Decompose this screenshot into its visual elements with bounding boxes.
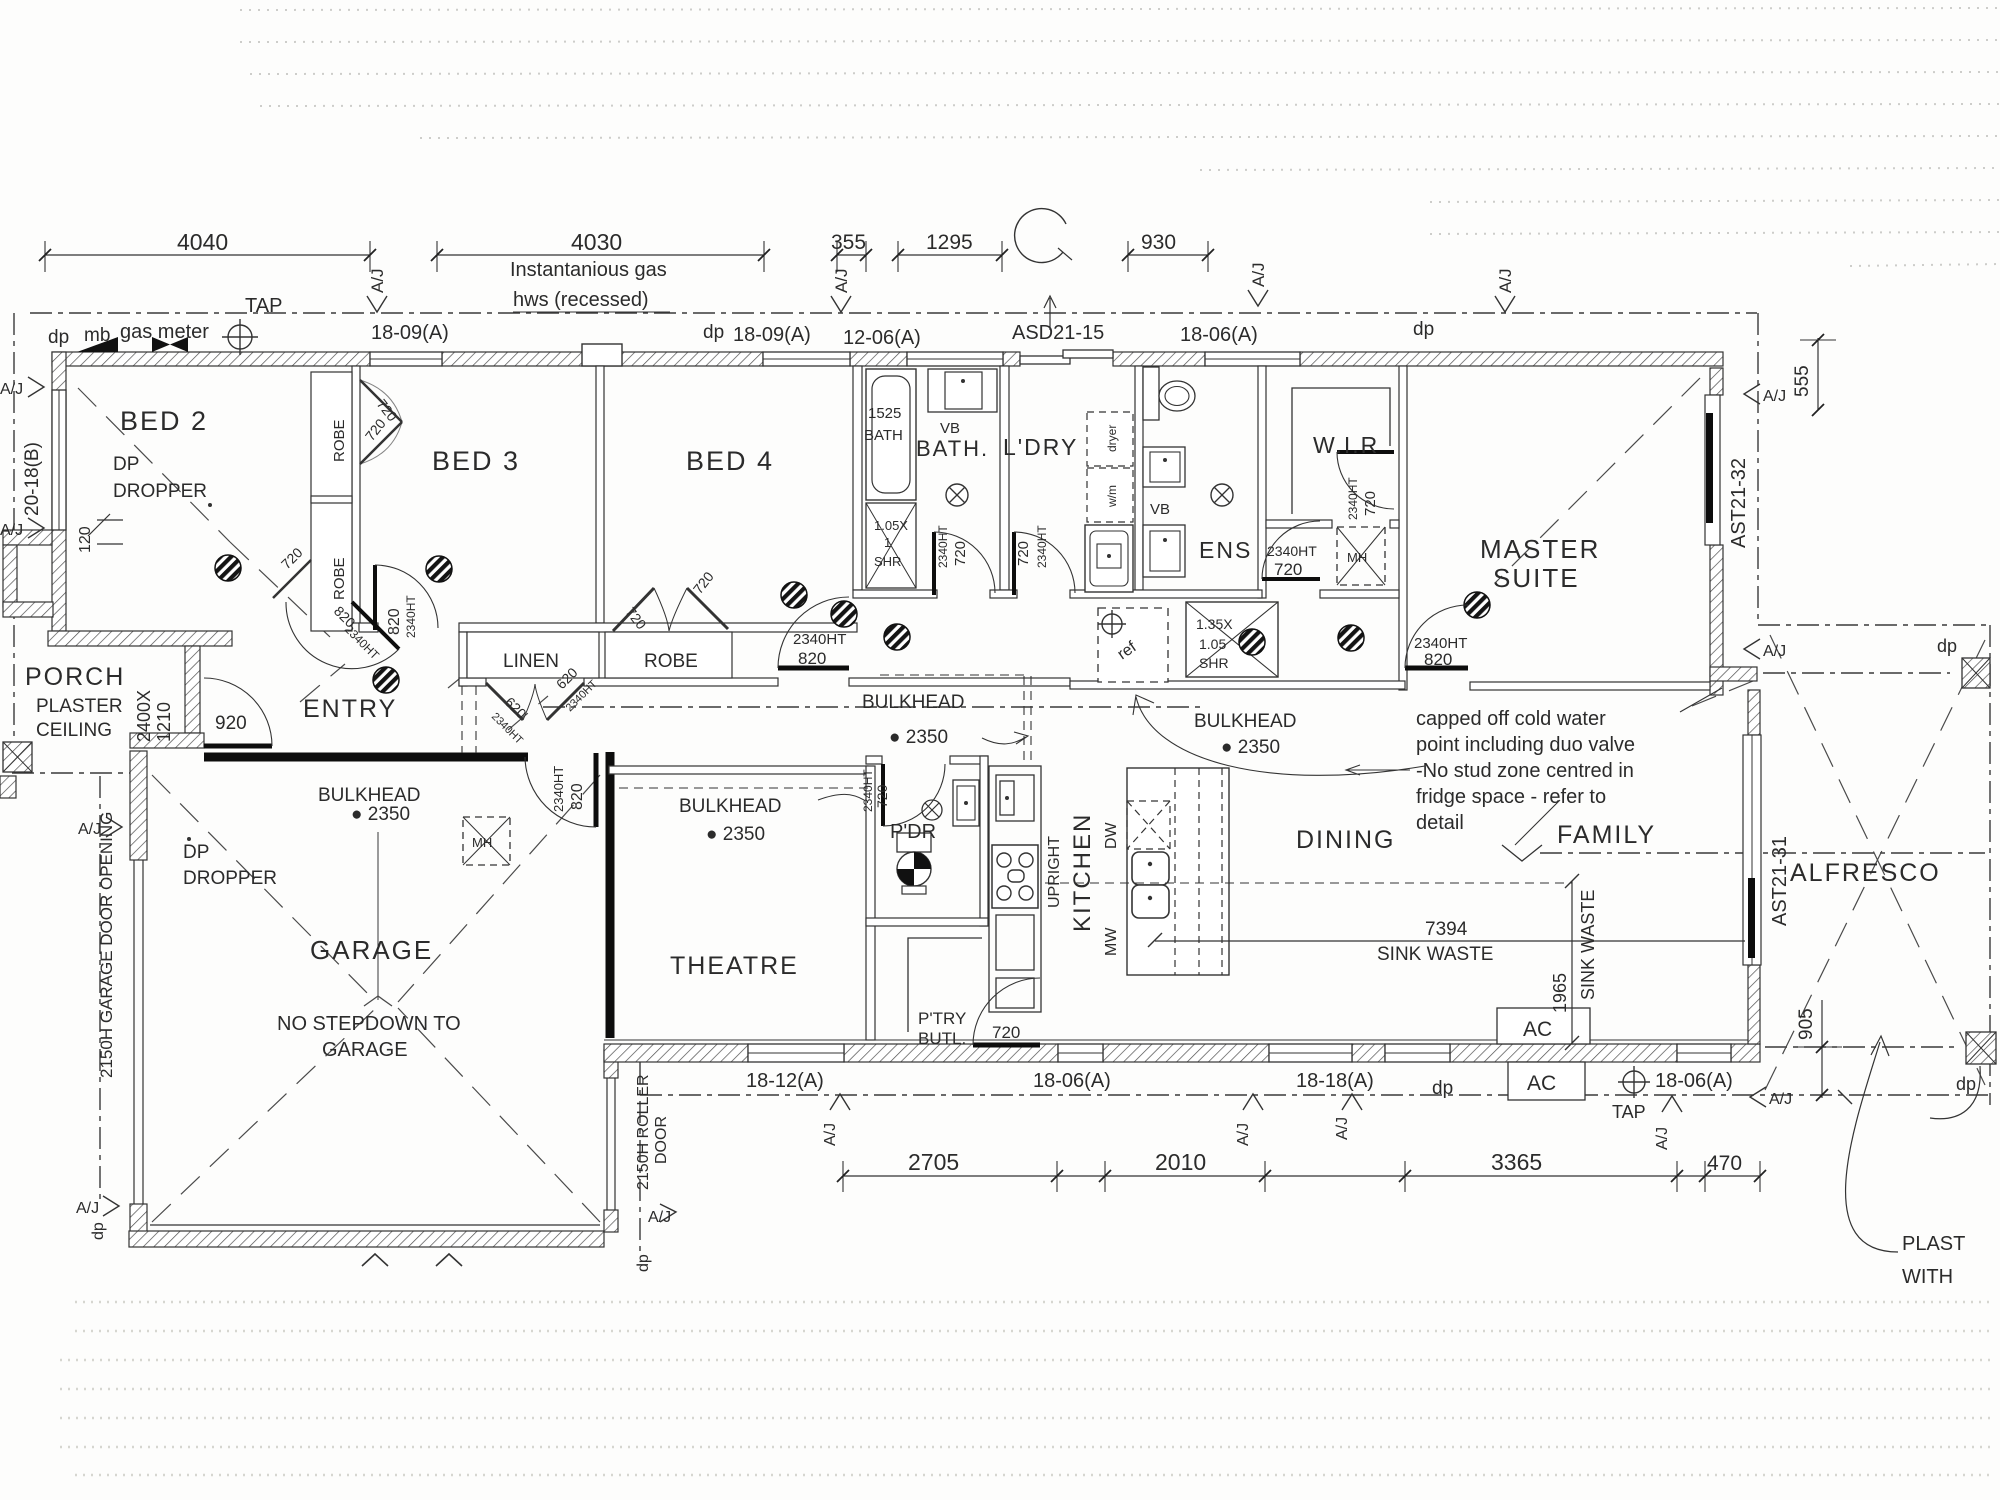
svg-text:VB: VB bbox=[1150, 501, 1170, 518]
svg-text:12-06(A): 12-06(A) bbox=[843, 327, 921, 349]
svg-text:ROBE: ROBE bbox=[331, 557, 348, 600]
svg-text:A/J: A/J bbox=[648, 1209, 671, 1226]
svg-text:GARAGE: GARAGE bbox=[310, 935, 433, 965]
svg-text:18-09(A): 18-09(A) bbox=[733, 324, 811, 346]
svg-text:2340HT: 2340HT bbox=[936, 525, 950, 568]
svg-text:930: 930 bbox=[1141, 231, 1176, 254]
svg-text:AC: AC bbox=[1523, 1018, 1552, 1041]
svg-text:THEATRE: THEATRE bbox=[670, 952, 799, 980]
svg-text:FAMILY: FAMILY bbox=[1557, 821, 1656, 849]
svg-text:A/J: A/J bbox=[1334, 1117, 1351, 1140]
svg-text:1: 1 bbox=[884, 535, 891, 550]
svg-text:720: 720 bbox=[992, 1023, 1020, 1042]
svg-text:A/J: A/J bbox=[1769, 1091, 1792, 1108]
svg-text:18-06(A): 18-06(A) bbox=[1033, 1070, 1111, 1092]
svg-text:SUITE: SUITE bbox=[1493, 563, 1580, 593]
svg-text:DP: DP bbox=[183, 842, 209, 863]
svg-text:720: 720 bbox=[1274, 560, 1302, 579]
svg-text:3365: 3365 bbox=[1491, 1149, 1542, 1175]
svg-text:720: 720 bbox=[952, 541, 969, 566]
svg-text:1210: 1210 bbox=[154, 702, 174, 742]
svg-text:A/J: A/J bbox=[0, 522, 23, 539]
svg-text:A/J: A/J bbox=[1235, 1123, 1252, 1146]
svg-text:A/J: A/J bbox=[822, 1123, 839, 1146]
svg-text:DOOR: DOOR bbox=[653, 1116, 670, 1164]
svg-text:BULKHEAD: BULKHEAD bbox=[318, 785, 420, 806]
svg-text:BULKHEAD: BULKHEAD bbox=[679, 796, 781, 817]
svg-text:BATH: BATH bbox=[864, 427, 903, 444]
svg-text:2340HT: 2340HT bbox=[1346, 477, 1360, 520]
svg-text:GARAGE: GARAGE bbox=[322, 1039, 408, 1061]
svg-text:mb: mb bbox=[84, 325, 110, 346]
svg-text:dp: dp bbox=[1413, 319, 1434, 340]
svg-text:18-12(A): 18-12(A) bbox=[746, 1070, 824, 1092]
svg-text:820: 820 bbox=[1424, 650, 1452, 669]
svg-text:TAP: TAP bbox=[245, 295, 282, 317]
svg-text:NO STEPDOWN TO: NO STEPDOWN TO bbox=[277, 1013, 461, 1035]
svg-text:A/J: A/J bbox=[1654, 1127, 1671, 1150]
svg-text:2340HT: 2340HT bbox=[1267, 543, 1317, 559]
svg-text:AC: AC bbox=[1527, 1072, 1556, 1095]
svg-text:A/J: A/J bbox=[1763, 643, 1786, 660]
svg-text:18-06(A): 18-06(A) bbox=[1655, 1070, 1733, 1092]
svg-text:1.05X: 1.05X bbox=[874, 518, 908, 533]
svg-text:● 2350: ● 2350 bbox=[351, 804, 410, 825]
svg-text:2150H ROLLER: 2150H ROLLER bbox=[635, 1074, 652, 1190]
svg-text:2150H GARAGE DOOR OPENING: 2150H GARAGE DOOR OPENING bbox=[97, 812, 116, 1078]
svg-text:2340HT: 2340HT bbox=[404, 595, 418, 638]
svg-text:A/J: A/J bbox=[1763, 388, 1786, 405]
svg-text:BULKHEAD: BULKHEAD bbox=[1194, 711, 1296, 732]
svg-text:dp: dp bbox=[48, 327, 69, 348]
svg-text:AST21-32: AST21-32 bbox=[1728, 458, 1750, 548]
svg-text:A/J: A/J bbox=[0, 381, 23, 398]
svg-text:18-18(A): 18-18(A) bbox=[1296, 1070, 1374, 1092]
svg-text:18-09(A): 18-09(A) bbox=[371, 322, 449, 344]
svg-text:BED 4: BED 4 bbox=[686, 446, 774, 476]
svg-text:820: 820 bbox=[569, 783, 586, 810]
svg-text:4040: 4040 bbox=[177, 229, 228, 255]
svg-text:UPRIGHT: UPRIGHT bbox=[1046, 836, 1063, 908]
svg-text:DW: DW bbox=[1103, 821, 1120, 849]
svg-text:MW: MW bbox=[1103, 927, 1120, 956]
svg-text:2340HT: 2340HT bbox=[793, 631, 846, 648]
svg-text:capped off cold water: capped off cold water bbox=[1416, 708, 1606, 730]
svg-text:dryer: dryer bbox=[1105, 425, 1119, 452]
svg-text:detail: detail bbox=[1416, 812, 1464, 834]
svg-text:DP: DP bbox=[113, 454, 139, 475]
svg-text:A/J: A/J bbox=[368, 268, 387, 293]
svg-text:720: 720 bbox=[1362, 491, 1379, 516]
svg-text:470: 470 bbox=[1707, 1152, 1742, 1175]
svg-text:PORCH: PORCH bbox=[25, 663, 125, 691]
svg-text:2340HT: 2340HT bbox=[861, 769, 875, 812]
svg-text:120: 120 bbox=[77, 526, 94, 553]
svg-text:● 2350: ● 2350 bbox=[706, 824, 765, 845]
svg-text:W.I.R: W.I.R bbox=[1313, 432, 1379, 458]
svg-text:SINK WASTE: SINK WASTE bbox=[1578, 890, 1598, 1000]
svg-text:dp: dp bbox=[90, 1222, 107, 1240]
svg-text:1.05: 1.05 bbox=[1199, 636, 1226, 652]
svg-text:355: 355 bbox=[831, 231, 866, 254]
svg-text:1295: 1295 bbox=[926, 231, 973, 254]
svg-text:PLAST: PLAST bbox=[1902, 1233, 1965, 1255]
svg-text:1525: 1525 bbox=[868, 405, 901, 422]
svg-text:DROPPER: DROPPER bbox=[113, 481, 207, 502]
svg-text:2340HT: 2340HT bbox=[551, 766, 566, 812]
svg-text:dp: dp bbox=[635, 1254, 652, 1272]
svg-text:TAP: TAP bbox=[1612, 1102, 1646, 1122]
svg-text:dp: dp bbox=[1956, 1074, 1976, 1094]
svg-text:7394: 7394 bbox=[1425, 919, 1468, 940]
svg-text:BATH.: BATH. bbox=[916, 436, 989, 461]
svg-text:20-18(B): 20-18(B) bbox=[22, 442, 43, 516]
svg-text:DINING: DINING bbox=[1296, 826, 1396, 854]
svg-text:PLASTER: PLASTER bbox=[36, 696, 123, 717]
svg-text:VB: VB bbox=[940, 420, 960, 437]
svg-text:L'DRY: L'DRY bbox=[1003, 434, 1078, 460]
svg-text:2010: 2010 bbox=[1155, 1149, 1206, 1175]
svg-text:Instantanious gas: Instantanious gas bbox=[510, 259, 667, 281]
svg-text:MASTER: MASTER bbox=[1480, 534, 1600, 564]
svg-text:point including duo valve: point including duo valve bbox=[1416, 734, 1635, 756]
svg-text:2705: 2705 bbox=[908, 1149, 959, 1175]
svg-text:820: 820 bbox=[798, 649, 826, 668]
svg-text:w/m: w/m bbox=[1105, 485, 1119, 508]
svg-text:AST21-31: AST21-31 bbox=[1769, 836, 1791, 926]
svg-text:fridge space - refer to: fridge space - refer to bbox=[1416, 786, 1606, 808]
svg-text:LINEN: LINEN bbox=[503, 651, 559, 672]
svg-text:4030: 4030 bbox=[571, 229, 622, 255]
svg-text:A/J: A/J bbox=[1496, 268, 1515, 293]
svg-text:DROPPER: DROPPER bbox=[183, 868, 277, 889]
svg-text:P'DR: P'DR bbox=[890, 821, 936, 843]
svg-text:SHR: SHR bbox=[1199, 655, 1229, 671]
svg-text:1.35X: 1.35X bbox=[1196, 616, 1233, 632]
svg-text:BULKHEAD: BULKHEAD bbox=[862, 692, 964, 713]
svg-text:720: 720 bbox=[874, 784, 890, 808]
svg-text:WITH: WITH bbox=[1902, 1266, 1953, 1288]
svg-text:KITCHEN: KITCHEN bbox=[1069, 813, 1096, 932]
svg-text:820: 820 bbox=[386, 608, 403, 635]
svg-text:SINK WASTE: SINK WASTE bbox=[1377, 944, 1493, 965]
svg-text:A/J: A/J bbox=[76, 1200, 99, 1217]
svg-text:BED 2: BED 2 bbox=[120, 406, 208, 436]
svg-text:gas meter: gas meter bbox=[120, 321, 209, 343]
svg-text:A/J: A/J bbox=[1249, 262, 1268, 287]
svg-text:SHR: SHR bbox=[874, 554, 901, 569]
svg-text:555: 555 bbox=[1792, 365, 1813, 397]
svg-text:-No stud zone centred in: -No stud zone centred in bbox=[1416, 760, 1634, 782]
svg-text:CEILING: CEILING bbox=[36, 720, 112, 741]
svg-text:ALFRESCO: ALFRESCO bbox=[1790, 859, 1941, 887]
svg-text:ENS: ENS bbox=[1199, 537, 1252, 563]
svg-text:BED 3: BED 3 bbox=[432, 446, 520, 476]
svg-text:1965: 1965 bbox=[1550, 973, 1570, 1013]
svg-text:dp: dp bbox=[703, 322, 724, 343]
svg-text:18-06(A): 18-06(A) bbox=[1180, 324, 1258, 346]
svg-text:2340HT: 2340HT bbox=[1035, 525, 1049, 568]
svg-text:BUTL.: BUTL. bbox=[918, 1029, 966, 1048]
svg-text:● 2350: ● 2350 bbox=[889, 727, 948, 748]
svg-text:905: 905 bbox=[1796, 1008, 1817, 1040]
svg-text:720: 720 bbox=[1015, 541, 1032, 566]
svg-text:P'TRY: P'TRY bbox=[918, 1009, 966, 1028]
svg-text:920: 920 bbox=[215, 713, 247, 734]
svg-text:ROBE: ROBE bbox=[644, 651, 698, 672]
svg-text:MH: MH bbox=[1347, 550, 1367, 565]
svg-text:hws (recessed): hws (recessed) bbox=[513, 289, 649, 311]
svg-text:dp: dp bbox=[1432, 1078, 1453, 1099]
svg-text:2400X: 2400X bbox=[134, 690, 154, 742]
svg-text:ASD21-15: ASD21-15 bbox=[1012, 322, 1104, 344]
svg-text:dp: dp bbox=[1937, 636, 1957, 656]
svg-text:ROBE: ROBE bbox=[331, 419, 348, 462]
svg-text:MH: MH bbox=[472, 835, 492, 850]
svg-text:ENTRY: ENTRY bbox=[303, 695, 397, 723]
svg-text:● 2350: ● 2350 bbox=[1221, 737, 1280, 758]
svg-text:A/J: A/J bbox=[832, 268, 851, 293]
